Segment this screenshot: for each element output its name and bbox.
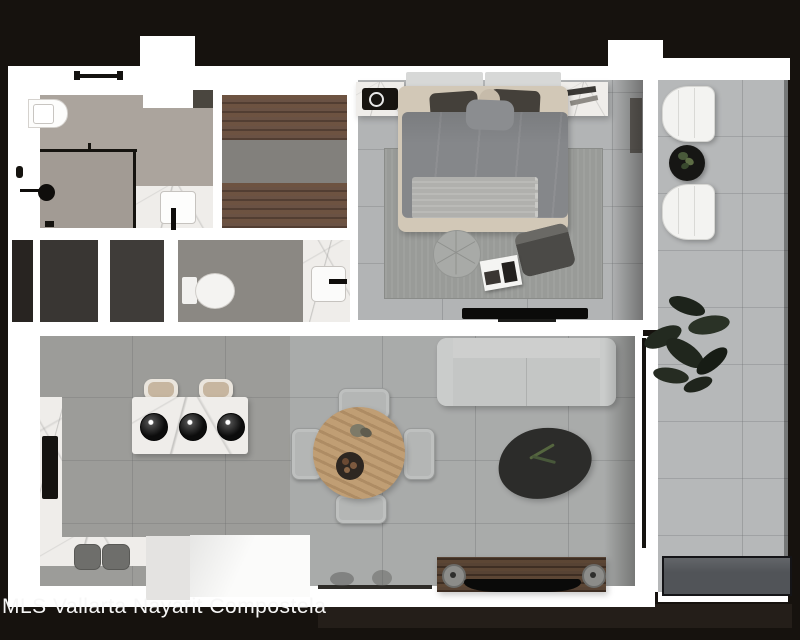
kitchen-white-block [190,535,310,597]
bathroom1-door-panel [193,90,213,108]
shower-valve [16,166,23,178]
shower-drain [45,221,54,227]
dining-chair-right [403,428,435,480]
speaker-right-dot [590,572,596,578]
balcony-chair-1-seam-a [678,90,679,136]
bedroom-tv-stand [498,319,556,322]
shower-glass-handle [88,143,91,152]
wall-storage-divider-3 [164,240,178,322]
sliding-door-glass [642,338,646,548]
island-stool-2-seat [203,382,229,397]
speaker-clock-ring [369,92,384,107]
wall-bath-closet [213,90,222,228]
bar-stool-1 [74,544,101,570]
magazine-photo-left [484,270,501,285]
wall-storage-divider-2 [98,240,110,322]
entry-shadow-2 [372,570,392,586]
throw-blanket [412,177,538,219]
dining-table [313,407,405,499]
speaker-left-dot [450,572,456,578]
balcony-chair-1 [662,86,715,142]
storage-closet-1-floor [40,240,98,322]
watermark-text: MLS Vallarta Nayarit Compostela [2,595,326,619]
fruit-3 [344,467,350,473]
fruit-2 [350,462,357,469]
sink-2 [311,266,346,302]
balcony-chair-2-seam-b [694,186,695,236]
island-stool-1-seat [148,382,174,397]
wall-bedroom-balcony [643,80,658,330]
cooktop [42,436,58,499]
faucet-2 [329,279,347,284]
living-tv [464,579,581,592]
bedroom-tv [462,308,588,319]
wall-left [8,66,40,607]
towel-bar [77,74,120,78]
wardrobe-bottom [222,183,347,228]
island-burner-3 [217,413,245,441]
sofa-backrest [437,338,616,358]
balcony-chair-1-seam-b [694,88,695,138]
wall-storage-divider-1 [33,240,40,322]
sink-1 [160,191,196,224]
storage-closet-2-floor [110,240,164,322]
fruit-1 [342,458,349,465]
balcony-chair-2 [662,184,715,240]
floor-plan-render: MLS Vallarta Nayarit Compostela [0,0,800,640]
rain-shower-head [38,184,55,201]
wall-balcony-top [655,58,790,80]
bedroom-right-shadow [610,80,643,320]
balcony-planter [662,556,792,596]
entry-door-line [318,585,432,589]
faucet-1 [171,208,176,230]
kitchen-cabinet [146,536,190,600]
duvet-top-pillow [465,99,514,131]
toilet-1-seat [33,104,54,124]
sofa-seat-split [526,358,527,406]
towel-bar-cap-left [74,71,80,80]
balcony-edge-shadow [784,80,788,592]
bathroom1-entry-niche [143,90,193,108]
towel-bar-cap-right [117,71,123,80]
toilet-2-bowl [195,273,235,309]
wardrobe-top [222,95,347,140]
island-burner-2 [179,413,207,441]
living-right-shadow [604,336,635,586]
wall-mid-horizontal [8,320,643,336]
sofa-armrest-left [437,338,453,406]
bar-stool-2 [102,544,130,570]
wall-hall-top [8,228,358,240]
background-reflection [318,604,792,628]
wall-notch-top-left [140,36,195,68]
island-burner-1 [140,413,168,441]
balcony-chair-2-seam-a [678,188,679,234]
entry-shadow-1 [330,572,354,586]
storage-dark-strip [12,240,33,322]
shower-glass-vertical [133,152,136,228]
